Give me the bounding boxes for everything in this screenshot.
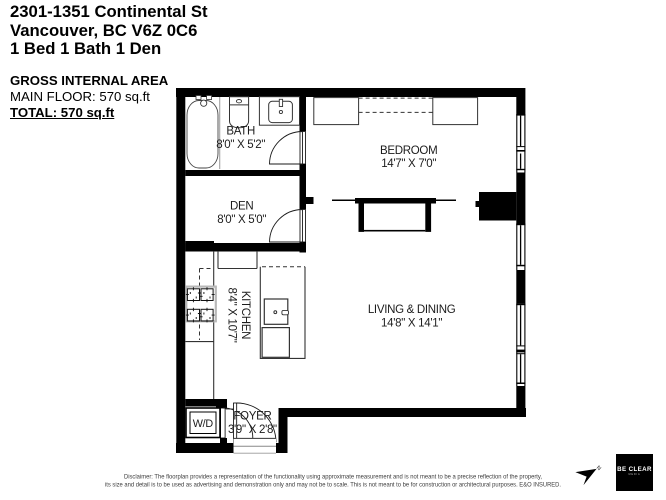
svg-text:BEDROOM: BEDROOM [380, 145, 437, 157]
svg-text:BATH: BATH [226, 126, 255, 138]
svg-text:8'0" X 5'0": 8'0" X 5'0" [217, 214, 266, 226]
svg-text:its size and detail is to be u: its size and detail is to be used as adv… [105, 482, 561, 489]
svg-text:8'4" X 10'7": 8'4" X 10'7" [226, 288, 238, 343]
svg-text:8'0" X 5'2": 8'0" X 5'2" [216, 139, 265, 151]
svg-text:FOYER: FOYER [233, 410, 271, 422]
svg-text:DEN: DEN [230, 201, 253, 213]
svg-text:3'9" X 2'8": 3'9" X 2'8" [228, 424, 277, 436]
svg-text:Disclaimer: The floorplan prov: Disclaimer: The floorplan provides a rep… [124, 474, 542, 481]
svg-text:KITCHEN: KITCHEN [239, 291, 251, 339]
svg-text:14'7" X 7'0": 14'7" X 7'0" [381, 158, 436, 170]
svg-text:W/D: W/D [193, 418, 214, 430]
svg-text:N: N [595, 465, 602, 472]
svg-text:14'8" X 14'1": 14'8" X 14'1" [381, 318, 442, 330]
svg-text:LIVING & DINING: LIVING & DINING [368, 304, 456, 316]
